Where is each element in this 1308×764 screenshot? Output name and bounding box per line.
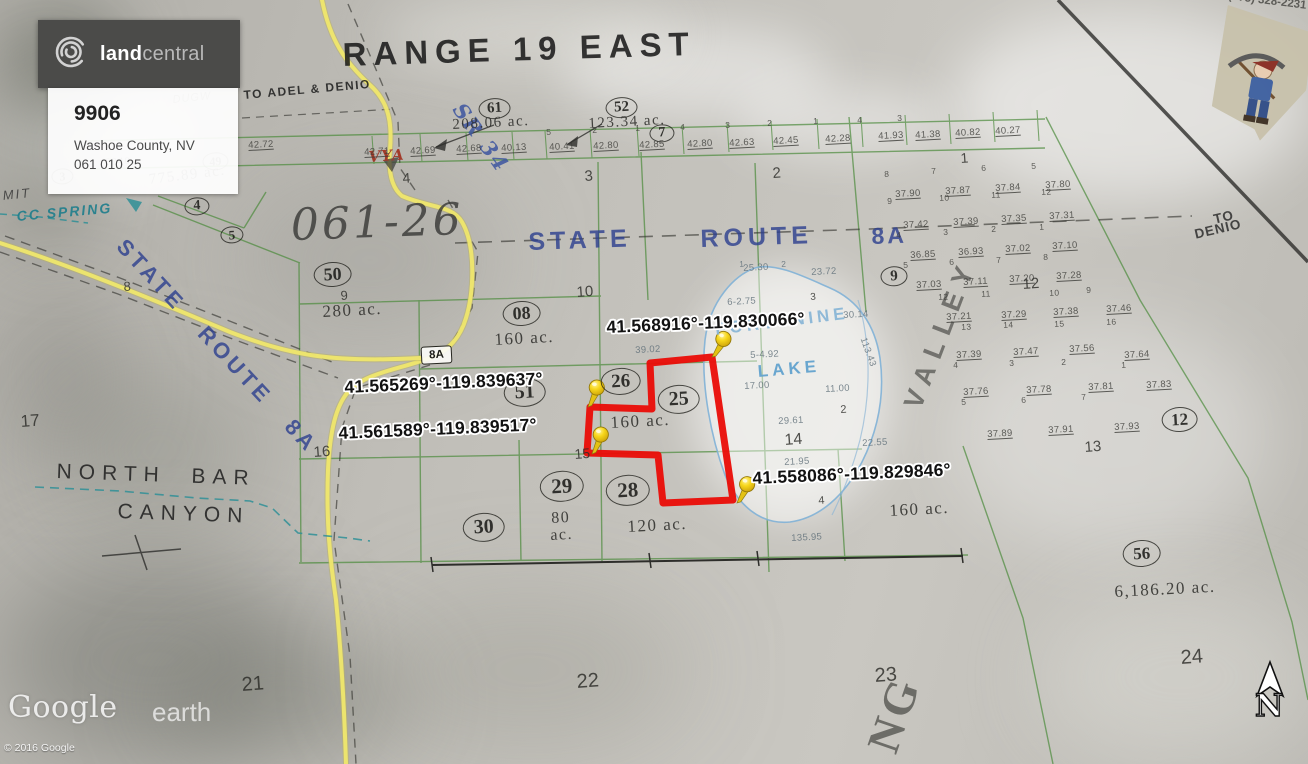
survey-number: 2	[592, 125, 598, 135]
label-range-19-east: RANGE 19 EAST	[342, 25, 696, 74]
listing-apn: 061 010 25	[74, 155, 238, 174]
label-to-adel-denio: TO ADEL & DENIO	[243, 77, 371, 102]
parcel-number: 56	[1122, 539, 1161, 568]
parcel-number: 4	[184, 197, 210, 216]
label-map-number: 061-26	[290, 194, 465, 251]
label-8a: 8A	[871, 222, 907, 250]
acreage-label: 120 ac.	[627, 514, 688, 537]
survey-number: 16	[1106, 316, 1117, 327]
label-state: STATE	[528, 224, 632, 257]
survey-number: 4	[896, 230, 902, 240]
parcel-number: 29	[539, 470, 585, 503]
parcel-number: 08	[502, 300, 541, 327]
survey-number: 25.30	[743, 262, 769, 274]
survey-number: 2	[781, 259, 787, 269]
pin-coordinate-label: 41.561589°-119.839517°	[338, 414, 537, 444]
section-number: 23	[874, 663, 898, 687]
section-number: 9	[340, 287, 348, 302]
survey-number: 37.39	[956, 349, 982, 361]
landcentral-spiral-icon	[52, 33, 90, 76]
survey-number: 41.38	[915, 129, 941, 141]
survey-number: 42.80	[687, 138, 713, 150]
survey-number: 1	[1039, 222, 1045, 232]
label-route: ROUTE	[700, 221, 813, 254]
acreage-label: 6,186.20 ac.	[1114, 577, 1216, 602]
parcel-number: 26	[600, 367, 641, 396]
survey-number: 6	[981, 163, 987, 173]
terrain-patch	[370, 595, 690, 745]
survey-number: 22.55	[862, 437, 888, 449]
property-info-card: 9906 Washoe County, NV 061 010 25	[48, 88, 238, 194]
section-number: 4	[818, 495, 825, 507]
survey-number: 40.41	[549, 141, 575, 153]
survey-number: 37.56	[1069, 343, 1095, 355]
label-cc-spring: CC SPRING	[16, 200, 113, 224]
survey-number: 11.00	[825, 383, 850, 395]
survey-number: 42.63	[729, 137, 755, 149]
survey-number: 37.35	[1001, 213, 1027, 225]
survey-number: 6	[949, 257, 955, 267]
survey-number: 3	[943, 227, 949, 237]
arrowhead	[434, 139, 447, 151]
survey-number: 37.39	[953, 216, 979, 228]
copyright-notice: © 2016 Google	[4, 742, 75, 754]
label-denio: DENIO	[1193, 216, 1243, 241]
listing-location: Washoe County, NV	[74, 136, 238, 155]
survey-number: 2	[991, 224, 997, 234]
prospector-icon	[1206, 5, 1308, 147]
label-state-route-8a-rotated: STATE ROUTE 8A	[111, 234, 323, 458]
survey-number: 2	[767, 118, 773, 128]
survey-number: 37.31	[1049, 210, 1075, 222]
survey-number: 5	[1031, 161, 1037, 171]
survey-number: 3	[897, 113, 903, 123]
survey-number: 42.72	[248, 139, 274, 151]
survey-number: 37.42	[903, 219, 929, 231]
survey-number: 37.03	[916, 279, 942, 291]
survey-number: 37.64	[1124, 349, 1150, 361]
section-number: 24	[1180, 645, 1204, 669]
survey-number: 39.02	[635, 344, 661, 356]
survey-number: 10	[939, 192, 950, 203]
section-number: 14	[784, 431, 803, 450]
survey-number: 6	[1021, 395, 1027, 405]
survey-number: 40.27	[995, 125, 1021, 137]
survey-number: 37.90	[895, 188, 921, 200]
survey-number: 37.89	[987, 428, 1013, 440]
survey-number: 12	[938, 291, 949, 302]
survey-number: 4	[680, 122, 686, 132]
survey-number: 29.61	[778, 415, 804, 427]
survey-number: 41.93	[878, 130, 904, 142]
survey-number: 11	[981, 289, 991, 299]
pin-coordinate-label: 41.558086°-119.829846°	[752, 459, 951, 489]
section-number: 15	[574, 445, 591, 462]
survey-number: 37.83	[1146, 379, 1172, 391]
survey-number: 37.38	[1053, 306, 1079, 318]
survey-number: 113.43	[858, 336, 879, 368]
nevada-state-graphic	[1206, 5, 1308, 147]
pin-coordinate-label: 41.568916°-119.830066°	[606, 308, 805, 338]
north-label: N	[1255, 688, 1283, 724]
section-number: 16	[313, 443, 331, 461]
survey-number: 37.46	[1106, 303, 1132, 315]
acreage-label: 280 ac.	[322, 299, 383, 322]
parcel-number: 28	[605, 474, 651, 507]
label-summit-partial: MIT	[2, 185, 32, 203]
survey-number: 37.20	[1009, 273, 1035, 285]
survey-number: 37.78	[1026, 384, 1052, 396]
section-number: 1	[960, 149, 969, 166]
survey-number: 9	[1086, 285, 1092, 295]
survey-number: 8	[1043, 252, 1049, 262]
survey-number: 6-2.75	[727, 295, 756, 307]
survey-number: 37.10	[1052, 240, 1078, 252]
survey-number: 7	[931, 166, 937, 176]
section-number: 8	[123, 278, 131, 293]
survey-number: 5	[961, 397, 967, 407]
survey-number: 42.69	[410, 145, 436, 157]
listing-id: 9906	[74, 102, 238, 126]
section-number: 22	[576, 669, 600, 693]
acreage-label: 80 ac.	[549, 509, 573, 544]
green-survey-lines	[88, 110, 1308, 764]
landcentral-logo[interactable]: landcentral	[38, 20, 240, 88]
survey-number: 30.14	[843, 309, 869, 321]
survey-number: 42.85	[639, 139, 665, 151]
survey-number: 15	[1054, 318, 1065, 329]
google-logo: Google	[8, 690, 118, 725]
survey-number: 37.93	[1114, 421, 1140, 433]
survey-number: 36.85	[910, 249, 936, 261]
parcel-number: 12	[1161, 406, 1198, 433]
survey-number: 37.02	[1005, 243, 1031, 255]
terrain-patch	[0, 295, 130, 465]
acreage-label: 160 ac.	[889, 498, 950, 521]
terrain-patch	[1040, 590, 1308, 764]
section-number: 21	[241, 672, 265, 696]
survey-number: 42.71	[364, 146, 390, 158]
section-number: 4	[402, 169, 411, 186]
survey-number: 40.82	[955, 127, 981, 139]
survey-number: 3	[1009, 358, 1015, 368]
survey-number: 2	[1061, 357, 1067, 367]
label-north-bar: NORTH BAR	[56, 460, 256, 491]
survey-number: 4	[857, 115, 863, 125]
survey-number: 42.45	[773, 135, 799, 147]
section-number: 10	[576, 283, 594, 301]
survey-number: 42.28	[825, 133, 851, 145]
logo-wordmark: landcentral	[100, 43, 204, 66]
survey-number: 10	[1049, 287, 1060, 298]
survey-number: 1	[813, 116, 819, 126]
survey-number: 37.76	[963, 386, 989, 398]
survey-number: 37.47	[1013, 346, 1039, 358]
acreage-label: 160 ac.	[494, 327, 555, 350]
survey-number: 9	[887, 196, 893, 206]
survey-number: 37.91	[1048, 424, 1074, 436]
survey-number: 14	[1003, 319, 1014, 330]
survey-number: 11	[991, 190, 1001, 200]
survey-number: 7	[1081, 392, 1087, 402]
survey-number: 1	[739, 259, 745, 269]
section-number: 3	[810, 292, 816, 303]
survey-number: 135.95	[791, 531, 822, 544]
survey-number: 23.72	[811, 266, 837, 278]
survey-number: 1	[635, 123, 641, 133]
survey-number: 8	[884, 169, 890, 179]
survey-number: 40.13	[501, 142, 527, 154]
map-viewport[interactable]: RANGE 19 EAST TO ADEL & DENIO SR 34 061-…	[0, 0, 1308, 764]
section-number: 2	[772, 164, 782, 182]
survey-number: 7	[996, 255, 1002, 265]
section-number: 2	[840, 404, 847, 416]
section-number: 17	[20, 411, 40, 432]
label-canyon: CANYON	[117, 500, 250, 529]
earth-logo: earth	[152, 697, 211, 728]
survey-number: 4	[953, 360, 959, 370]
survey-number: 37.81	[1088, 381, 1114, 393]
survey-number: 13	[961, 321, 972, 332]
survey-number: 3	[725, 120, 731, 130]
survey-number: 36.93	[958, 246, 984, 258]
logo-word-central: central	[142, 43, 204, 65]
logo-word-land: land	[100, 43, 142, 65]
survey-number: 5	[903, 260, 909, 270]
survey-number: 5-4.92	[750, 348, 779, 360]
survey-number: 37.28	[1056, 270, 1082, 282]
survey-number: 5	[546, 127, 552, 137]
survey-number: 17.00	[744, 380, 770, 392]
survey-number: 42.68	[456, 143, 482, 155]
parcel-number: 50	[313, 261, 352, 288]
survey-number: 12	[1041, 186, 1052, 197]
label-lake: LAKE	[757, 357, 821, 382]
acreage-label: 208.06 ac.	[452, 113, 530, 134]
highway-shield-8a: 8A	[421, 345, 453, 365]
section-number: 3	[584, 167, 594, 185]
acreage-label: 160 ac.	[610, 410, 671, 433]
survey-number: 37.11	[963, 276, 988, 288]
terrain-patch	[0, 555, 310, 764]
survey-number: 1	[1121, 360, 1127, 370]
survey-number: 42.80	[593, 140, 619, 152]
map-pin-w[interactable]	[590, 426, 609, 456]
parcel-number: 5	[220, 226, 244, 244]
section-number: 13	[1084, 438, 1102, 456]
parcel-number: 30	[462, 512, 505, 543]
